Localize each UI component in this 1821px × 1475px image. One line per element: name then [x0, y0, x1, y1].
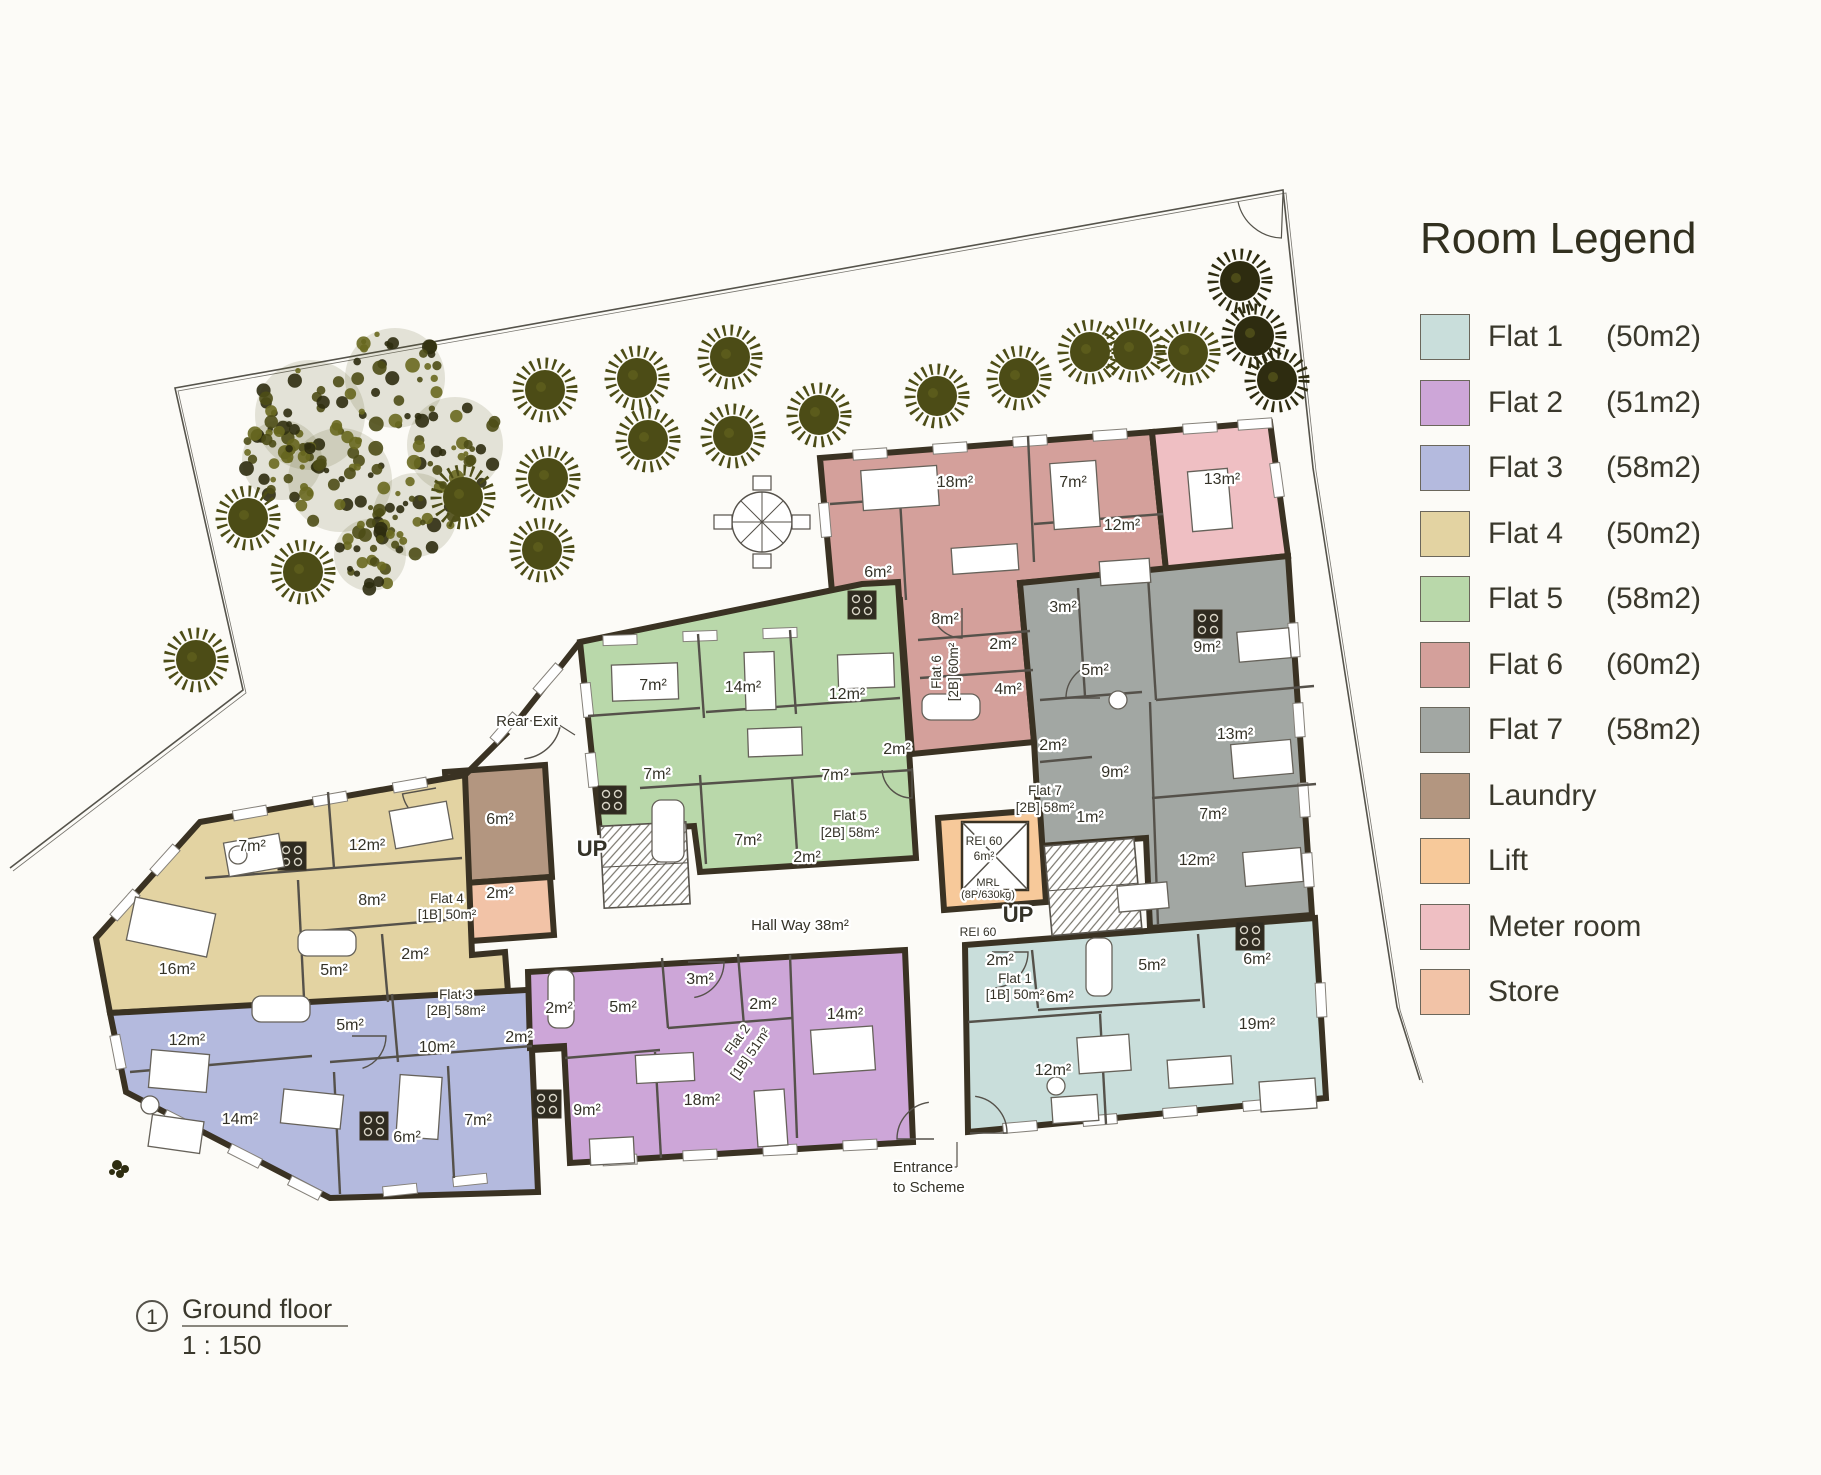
room-area-label: 18m² [937, 474, 974, 491]
plan-annotation: to Scheme [893, 1179, 965, 1196]
legend-swatch [1420, 904, 1470, 950]
furniture [148, 1050, 209, 1093]
room-area-label: Flat 3 [439, 987, 473, 1002]
room-area-label: [2B] 58m² [427, 1003, 486, 1018]
furniture [861, 465, 940, 510]
furniture [1259, 1078, 1317, 1112]
chair-icon [1047, 1077, 1065, 1095]
furniture [1231, 739, 1294, 778]
room-area-label: 6m² [393, 1129, 421, 1146]
sheet-number-badge: 1 [136, 1300, 168, 1332]
room-area-label: 6m² [1046, 989, 1074, 1006]
room-area-label: Flat 5 [833, 808, 867, 823]
room-area-label: 9m² [1101, 764, 1129, 781]
bush-icon [521, 451, 575, 505]
kitchen-hob-icon [360, 1112, 388, 1140]
legend-label: Flat 6 [1488, 648, 1606, 682]
window [1238, 418, 1273, 430]
room-area-label: 7m² [1199, 806, 1227, 823]
legend-label: Flat 7 [1488, 713, 1606, 747]
bush-icon [910, 369, 964, 423]
room-area-label: 12m² [1104, 517, 1141, 534]
legend-swatch [1420, 838, 1470, 884]
legend-label: Meter room [1488, 910, 1606, 944]
room-area-label: [2B] 58m² [821, 825, 880, 840]
room-area-label: 7m² [734, 832, 762, 849]
large-tree-icon [239, 328, 503, 596]
window [1298, 783, 1310, 818]
furniture [589, 1137, 634, 1165]
legend-label: Laundry [1488, 779, 1606, 813]
room-area-label: 7m² [1059, 474, 1087, 491]
plan-annotation: MRL [976, 877, 999, 889]
legend-item-flat-5: Flat 5(58m2) [1420, 575, 1701, 623]
room-area-label: 5m² [336, 1017, 364, 1034]
bush-icon [515, 523, 569, 577]
room-area-label: Flat 4 [430, 891, 464, 906]
room-area-label: 3m² [1049, 599, 1077, 616]
room-area-label: 6m² [864, 564, 892, 581]
room-area-label: 13m² [1204, 471, 1241, 488]
plan-annotation: Entrance [893, 1159, 953, 1176]
furniture [1099, 558, 1151, 585]
furniture [1077, 1034, 1131, 1074]
legend-swatch [1420, 707, 1470, 753]
site-gate-swing [1238, 192, 1283, 238]
bush-icon [706, 409, 760, 463]
legend-swatch [1420, 511, 1470, 557]
room-area-label: 4m² [994, 681, 1022, 698]
window [603, 634, 637, 645]
legend-label: Lift [1488, 844, 1606, 878]
drawing-scale: 1 : 150 [182, 1330, 262, 1361]
legend-swatch [1420, 314, 1470, 360]
room-area-label: 12m² [349, 837, 386, 854]
legend-swatch [1420, 773, 1470, 819]
legend-area-value: (58m2) [1606, 582, 1701, 616]
window [683, 630, 717, 641]
room-area-label: 2m² [986, 952, 1014, 969]
room-area-label: [1B] 50m² [418, 907, 477, 922]
window [1093, 429, 1128, 441]
room-area-label: 9m² [1193, 639, 1221, 656]
room-area-label: 2m² [545, 1000, 573, 1017]
legend-area-value: (50m2) [1606, 320, 1701, 354]
dark-bush-icon [1250, 353, 1304, 407]
room-area-label: 2m² [793, 849, 821, 866]
window [853, 448, 888, 460]
legend-area-value: (58m2) [1606, 713, 1701, 747]
room-area-label: Flat 6 [929, 655, 944, 689]
bathtub-icon [548, 970, 574, 1028]
bathtub-icon [298, 930, 356, 956]
room-area-label: 2m² [505, 1029, 533, 1046]
furniture [837, 653, 894, 689]
window [533, 663, 563, 695]
room-area-label: 14m² [827, 1006, 864, 1023]
furniture [748, 727, 803, 757]
kitchen-hob-icon [598, 786, 626, 814]
window [763, 627, 797, 638]
room-area-label: 13m² [1217, 726, 1254, 743]
room-area-label: 10m² [419, 1039, 456, 1056]
legend-item-lift: Lift [1420, 837, 1606, 885]
room-area-label: 19m² [1239, 1016, 1276, 1033]
room-area-label: [2B] 58m² [1016, 800, 1075, 815]
legend-item-flat-2: Flat 2(51m2) [1420, 379, 1701, 427]
room-area-label: 7m² [238, 838, 266, 855]
bush-icon [518, 363, 572, 417]
room-area-label: 1m² [1076, 809, 1104, 826]
room-area-label: Flat 7 [1028, 783, 1062, 798]
window [1013, 435, 1048, 447]
room-area-label: 3m² [686, 971, 714, 988]
plan-annotation: UP [577, 836, 608, 861]
bathtub-icon [252, 996, 310, 1022]
bush-icon [276, 545, 330, 599]
legend-swatch [1420, 380, 1470, 426]
furniture [635, 1053, 694, 1084]
legend-area-value: (58m2) [1606, 451, 1701, 485]
plan-annotation: Rear Exit [496, 713, 559, 730]
dark-bush-icon [1213, 254, 1267, 308]
kitchen-hob-icon [1194, 610, 1222, 638]
furniture [1051, 1094, 1099, 1123]
room-area-label: 2m² [749, 996, 777, 1013]
legend-item-flat-6: Flat 6(60m2) [1420, 641, 1701, 689]
legend-label: Flat 2 [1488, 386, 1606, 420]
legend-item-laundry: Laundry [1420, 772, 1606, 820]
room-area-label: 9m² [573, 1102, 601, 1119]
bush-icon [703, 330, 757, 384]
bush-icon [792, 388, 846, 442]
legend-label: Flat 1 [1488, 320, 1606, 354]
bush-icon [1063, 325, 1117, 379]
room-area-label: 5m² [320, 962, 348, 979]
bathtub-icon [652, 800, 684, 862]
room-area-label: 12m² [169, 1032, 206, 1049]
furniture [1050, 460, 1100, 529]
legend-swatch [1420, 576, 1470, 622]
room-area-label: 2m² [883, 741, 911, 758]
site-marker-icon [109, 1160, 129, 1178]
legend-swatch [1420, 642, 1470, 688]
legend-swatch [1420, 969, 1470, 1015]
window [1293, 703, 1305, 738]
kitchen-hob-icon [533, 1090, 561, 1118]
window [933, 442, 968, 454]
furniture [1237, 628, 1291, 662]
room-area-label: 8m² [358, 892, 386, 909]
kitchen-hob-icon [848, 591, 876, 619]
chair-icon [141, 1096, 159, 1114]
room-area-label: 6m² [486, 811, 514, 828]
room-area-label: 5m² [1081, 662, 1109, 679]
furniture [280, 1089, 343, 1129]
room-area-label: 7m² [464, 1112, 492, 1129]
window [1315, 983, 1327, 1017]
legend-title: Room Legend [1420, 214, 1696, 264]
bush-icon [169, 633, 223, 687]
window [843, 1139, 877, 1151]
legend-item-store: Store [1420, 968, 1606, 1016]
title-underline [182, 1325, 348, 1327]
room-area-label: 16m² [159, 961, 196, 978]
room-area-label: 8m² [931, 611, 959, 628]
furniture [1167, 1056, 1233, 1088]
bush-icon [610, 351, 664, 405]
plan-annotation: 6m² [974, 849, 995, 863]
plan-annotation: Hall Way 38m² [751, 917, 849, 934]
bush-icon [992, 351, 1046, 405]
room-area-label: 12m² [1179, 852, 1216, 869]
bathtub-icon [1086, 938, 1112, 996]
legend-item-flat-3: Flat 3(58m2) [1420, 444, 1701, 492]
legend-item-flat-7: Flat 7(58m2) [1420, 706, 1701, 754]
legend-item-flat-4: Flat 4(50m2) [1420, 510, 1701, 558]
legend-item-meter-room: Meter room [1420, 903, 1606, 951]
room-area-label: 2m² [486, 885, 514, 902]
room-area-label: 18m² [684, 1092, 721, 1109]
legend-label: Store [1488, 975, 1606, 1009]
legend-area-value: (60m2) [1606, 648, 1701, 682]
bush-icon [1161, 326, 1215, 380]
room-area-label: 2m² [1039, 737, 1067, 754]
plan-annotation: REI 60 [960, 925, 997, 939]
plan-annotation: REI 60 [966, 834, 1003, 848]
room-area-label: 12m² [829, 686, 866, 703]
furniture [1117, 882, 1169, 912]
room-area-label: 2m² [989, 636, 1017, 653]
room-area-label: 5m² [1138, 957, 1166, 974]
room-area-label: 7m² [643, 766, 671, 783]
furniture [951, 544, 1019, 575]
room-area-label: 12m² [1035, 1062, 1072, 1079]
plan-annotation: (8P/630kg) [961, 889, 1015, 901]
legend-item-flat-1: Flat 1(50m2) [1420, 313, 1701, 361]
legend-label: Flat 4 [1488, 517, 1606, 551]
floor-plan-page: { "canvas": {"w":1821,"h":1475,"bg":"#fc… [0, 0, 1821, 1475]
legend-swatch [1420, 445, 1470, 491]
room-area-label: [1B] 50m² [986, 987, 1045, 1002]
window [683, 1149, 717, 1161]
legend-area-value: (50m2) [1606, 517, 1701, 551]
chair-icon [1109, 691, 1127, 709]
furniture [811, 1026, 876, 1074]
room-area-label: Flat 1 [998, 971, 1032, 986]
drawing-name: Ground floor [182, 1294, 332, 1325]
room-area-label: [2B] 60m² [946, 642, 961, 701]
window [1302, 853, 1314, 888]
room-area-label: 2m² [401, 946, 429, 963]
room-area-label: 7m² [821, 767, 849, 784]
room-area-label: 6m² [1243, 951, 1271, 968]
kitchen-hob-icon [1236, 922, 1264, 950]
round-table-icon [714, 476, 810, 568]
furniture [1243, 848, 1304, 887]
bush-icon [621, 413, 675, 467]
legend-label: Flat 5 [1488, 582, 1606, 616]
room-area-label: 7m² [639, 677, 667, 694]
room-area-label: 14m² [725, 679, 762, 696]
window [1183, 422, 1218, 434]
furniture [148, 1115, 204, 1154]
legend-label: Flat 3 [1488, 451, 1606, 485]
room-area-label: 5m² [609, 999, 637, 1016]
legend-area-value: (51m2) [1606, 386, 1701, 420]
furniture [754, 1089, 788, 1147]
plan-annotation: UP [1003, 902, 1034, 927]
room-area-label: 14m² [222, 1111, 259, 1128]
